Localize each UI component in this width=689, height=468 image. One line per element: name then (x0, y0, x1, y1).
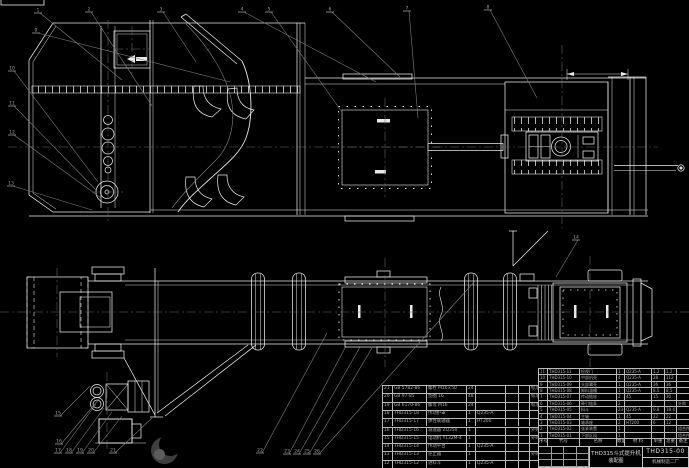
bom-cell: 17 (383, 418, 393, 426)
table-row: 20GB 97-85垫圈 1648标准件 (383, 393, 541, 401)
bom-cell: 逆止器 (427, 451, 467, 459)
bom-cell: 螺母 M16 (427, 402, 467, 410)
bom-cell (506, 385, 519, 393)
table-row: 16THD315-16减速器 ZQ3501外购 (383, 427, 541, 435)
drawing-title: THD315斗式提升机 装配图 (590, 447, 643, 467)
bom-cell: 总重 (665, 438, 677, 446)
table-row: 17THD315-17弹性联轴器1HT200 (383, 418, 541, 426)
casing-joints (252, 273, 517, 350)
bom-cell: GB 97-85 (393, 393, 427, 401)
bom-cell: 16 (383, 427, 393, 435)
break-line (440, 287, 443, 341)
bom-cell: THD315-12 (393, 460, 427, 468)
bom-cell: 1 (467, 418, 476, 426)
table-row: 21GB 5782-86螺栓 M16×5024标准件 (383, 385, 541, 393)
balloon-number: 12 (9, 130, 15, 136)
border-fragment (1, 0, 44, 5)
balloon: 24 (293, 347, 360, 455)
bom-cell: 材 料 (625, 438, 652, 446)
balloon: 22 (256, 333, 327, 454)
bom-cell (506, 460, 519, 468)
balloon-number: 19 (77, 448, 83, 454)
table-row: 15THD315-15电动机 Y132M-41外购 (383, 435, 541, 443)
bom-cell (519, 443, 530, 451)
balloon: 1 (34, 8, 122, 81)
balloon: 13 (7, 181, 92, 211)
bom-cell: GB 6170-86 (393, 402, 427, 410)
balloon-number: 15 (55, 411, 61, 417)
bom-cell: 14 (383, 443, 393, 451)
takeup-handle (614, 165, 684, 171)
bom-cell: 单重 (652, 438, 665, 446)
bom-cell: THD315-01 (548, 432, 580, 438)
drive-unit-plan (91, 381, 150, 443)
bom-cell (506, 418, 519, 426)
bom-cell (665, 432, 677, 438)
bom-cell (519, 402, 530, 410)
logo-mark (150, 436, 180, 466)
bom-cell: 传动平台 (427, 443, 467, 451)
balloon: 11 (8, 101, 96, 191)
title-block: THD315斗式提升机 装配图 THD315-00 机械制造二厂 (538, 446, 689, 468)
bom-cell (519, 451, 530, 459)
table-row: 19GB 6170-86螺母 M1624标准件 (383, 402, 541, 410)
bom-cell (506, 443, 519, 451)
balloon-number: 3 (160, 7, 163, 13)
balloon: 14 (556, 235, 580, 278)
balloon-number: 8 (487, 5, 490, 11)
drawing-number: THD315-00 (643, 447, 688, 457)
bom-cell: 弹性联轴器 (427, 418, 467, 426)
bom-cell: 19 (383, 402, 393, 410)
bom-cell: THD315-17 (393, 418, 427, 426)
material-flow-curve (172, 24, 233, 208)
bom-cell: 序号 (539, 438, 548, 446)
balloon-number: 5 (268, 7, 271, 13)
balloon: 25 (303, 348, 372, 455)
bom-cell (519, 418, 530, 426)
bom-cell: 1 (467, 451, 476, 459)
front-view (29, 14, 684, 221)
drawing-title-text: THD315斗式提升机 (591, 451, 641, 458)
table-row: 13THD315-13逆止器1外购 (383, 451, 541, 459)
bom-cell: 24 (467, 385, 476, 393)
table-row: 1THD315-01下部区段1组合件 (539, 432, 689, 438)
balloon-number: 2 (88, 7, 91, 13)
balloon: 3 (157, 7, 196, 63)
bom-cell: THD315-13 (393, 451, 427, 459)
balloon: 6 (326, 7, 400, 78)
table-row: 12THD315-12进料斗1Q235-A (383, 460, 541, 468)
balloon-number: 9 (35, 28, 38, 34)
bom-cell (506, 435, 519, 443)
bom-cell: 下部区段 (580, 432, 617, 438)
balloon-number: 25 (304, 449, 310, 455)
bom-cell: GB 5782-86 (393, 385, 427, 393)
balloon: 4 (238, 7, 376, 83)
bom-cell (476, 402, 506, 410)
company-name: 机械制造二厂 (643, 457, 688, 468)
bom-cell: 20 (383, 393, 393, 401)
bom-cell: 名称 (580, 438, 617, 446)
bom-cell (476, 451, 506, 459)
bom-cell: Q235-A (476, 460, 506, 468)
balloon: 10 (8, 66, 98, 183)
bom-cell: 13 (383, 451, 393, 459)
balloon-number: 20 (88, 448, 94, 454)
bom-cell (476, 385, 506, 393)
bom-cell (519, 410, 530, 418)
bom-cell: 进料斗 (427, 460, 467, 468)
bom-cell (506, 410, 519, 418)
balloon: 23 (283, 346, 346, 455)
balloon-number: 22 (257, 448, 263, 454)
bom-cell: 12 (383, 460, 393, 468)
bom-cell: 垫圈 16 (427, 393, 467, 401)
bom-cell (506, 393, 519, 401)
revision-grid (539, 447, 590, 467)
bom-cell (476, 393, 506, 401)
bom-cell: 1 (467, 435, 476, 443)
bom-cell: 组合件 (677, 432, 689, 438)
bom-cell: 电动机 Y132M-4 (427, 435, 467, 443)
buckets (186, 86, 254, 207)
balloon-number: 24 (294, 449, 300, 455)
parts-table-left: 21GB 5782-86螺栓 M16×5024标准件20GB 97-85垫圈 1… (382, 385, 541, 468)
balloon-number: 4 (241, 7, 244, 13)
parts-table-right: 11THD315-11检视门1Q235-A1.21.210THD315-10中部… (538, 368, 689, 439)
balloon-number: 23 (284, 449, 290, 455)
bom-cell: Q235-A (476, 410, 506, 418)
head-cover-plan (27, 277, 112, 348)
bom-cell (476, 427, 506, 435)
bom-cell (506, 451, 519, 459)
bom-cell (519, 393, 530, 401)
bom-cell: 1 (467, 443, 476, 451)
balloon: 20 (87, 416, 122, 454)
bom-cell: 48 (467, 393, 476, 401)
balloon: 15 (54, 386, 90, 417)
balloon-number: 10 (9, 66, 15, 72)
bom-cell: 螺栓 M16×50 (427, 385, 467, 393)
balloon-number: 26 (314, 449, 320, 455)
bom-cell: 1 (539, 432, 548, 438)
bom-cell (625, 432, 652, 438)
cad-sheet: 1234567891011121314151617181920212223242… (0, 0, 689, 468)
bom-cell (652, 432, 665, 438)
bom-cell: 1 (467, 410, 476, 418)
balloon-number: 1 (37, 8, 40, 14)
bom-cell (519, 427, 530, 435)
bom-cell: 1 (467, 427, 476, 435)
bom-cell: THD315-16 (393, 427, 427, 435)
bom-cell (506, 427, 519, 435)
balloon: 19 (76, 412, 112, 454)
bom-cell: 24 (467, 402, 476, 410)
bom-cell: THD315-18 (393, 410, 427, 418)
balloon-number: 18 (66, 448, 72, 454)
balloon-number: 21 (110, 448, 116, 454)
balloon-number: 14 (573, 235, 579, 241)
balloon: 5 (265, 7, 342, 113)
bom-cell: 数量 (617, 438, 625, 446)
bom-cell: 1 (617, 432, 625, 438)
table-row: 14THD315-14传动平台1Q235-A (383, 443, 541, 451)
balloon: 7 (403, 6, 418, 119)
balloon-number: 6 (329, 7, 332, 13)
bom-cell: HT200 (476, 418, 506, 426)
bom-cell (476, 435, 506, 443)
balloon-number: 11 (9, 101, 15, 107)
bom-cell (519, 435, 530, 443)
bom-cell: 传动护罩 (427, 410, 467, 418)
bom-cell: 代号 (548, 438, 580, 446)
balloon-number: 16 (56, 439, 62, 445)
bom-cell: 18 (383, 410, 393, 418)
bom-cell (519, 385, 530, 393)
bom-cell: 备注 (677, 438, 689, 446)
bom-cell: 减速器 ZQ350 (427, 427, 467, 435)
balloon: 12 (8, 130, 101, 199)
bom-cell: THD315-15 (393, 435, 427, 443)
balloon: 21 (109, 418, 152, 454)
bom-cell: 1 (467, 460, 476, 468)
balloon-number: 13 (8, 181, 14, 187)
bom-cell (506, 402, 519, 410)
bom-cell: 21 (383, 385, 393, 393)
drive-section (428, 82, 608, 213)
bom-cell: THD315-14 (393, 443, 427, 451)
bom-cell: Q235-A (476, 443, 506, 451)
table-row: 序号代号名称数量材 料单重总重备注 (539, 438, 689, 446)
balloon-number: 7 (406, 6, 409, 12)
drawing-subtitle-text: 装配图 (608, 458, 623, 464)
balloon-number: 17 (55, 448, 61, 454)
table-row: 18THD315-18传动护罩1Q235-A (383, 410, 541, 418)
bom-cell: 15 (383, 435, 393, 443)
tail-section-plan (520, 270, 652, 355)
bom-cell (519, 460, 530, 468)
